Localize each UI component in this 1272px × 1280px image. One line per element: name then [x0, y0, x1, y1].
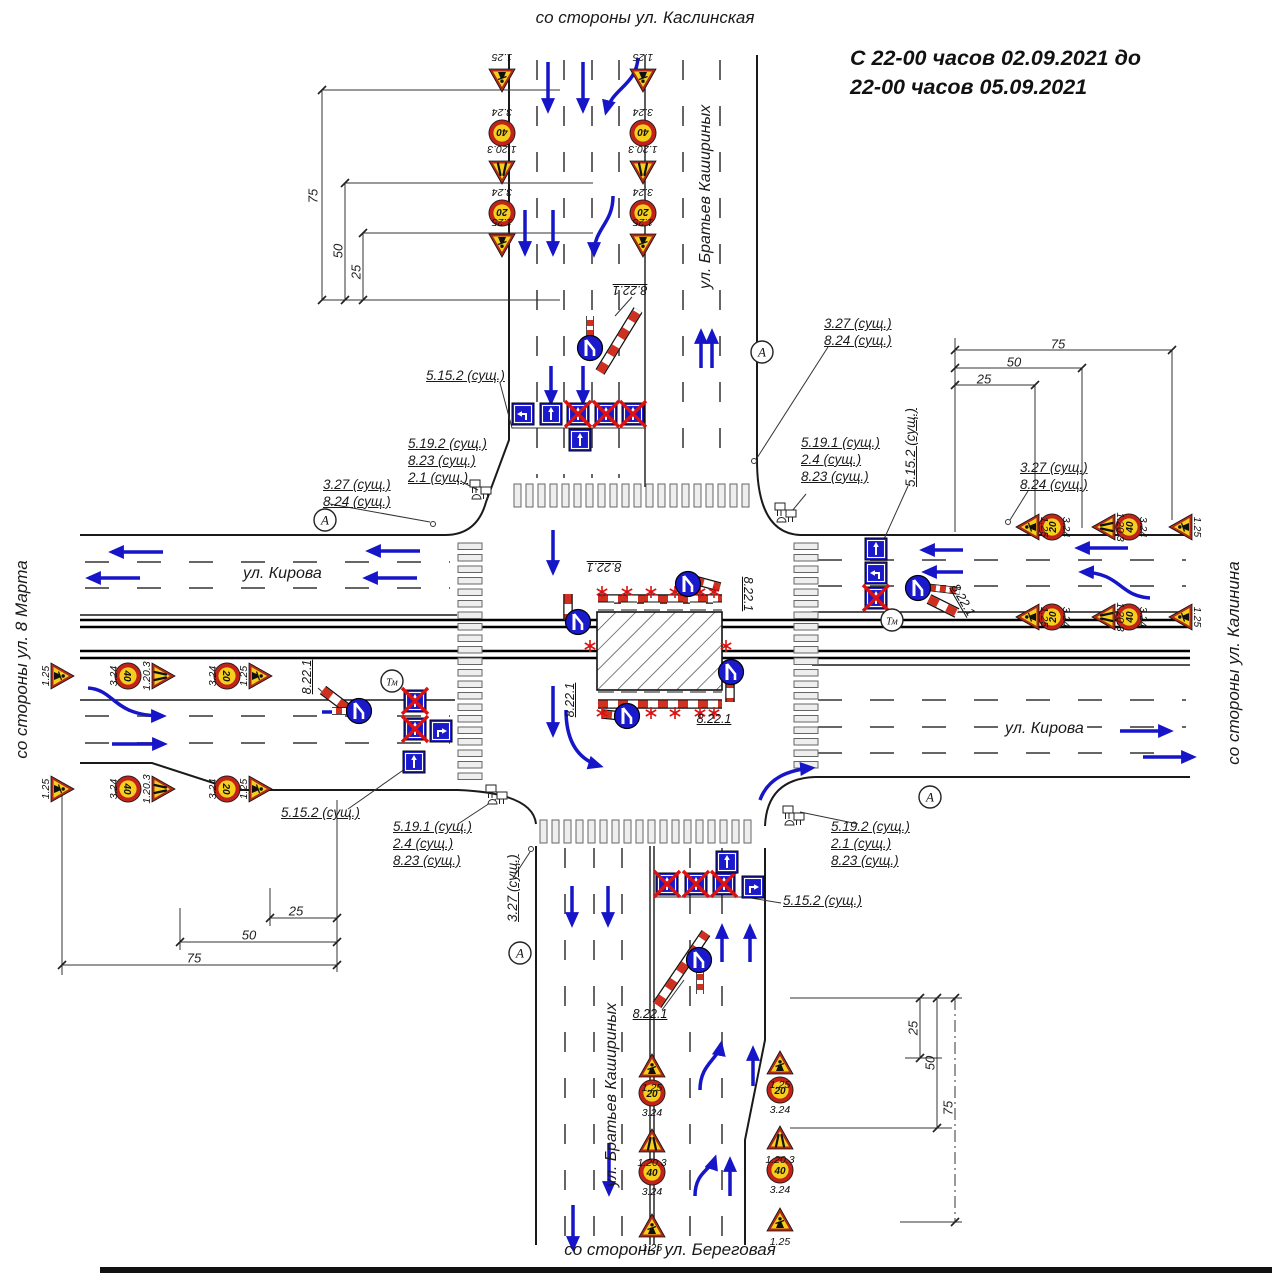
- crosswalk-bar: [550, 484, 557, 507]
- detour-sign-8-22-1: [676, 572, 701, 597]
- callout-line: 2.4 (сущ.): [801, 452, 880, 469]
- callout-5-19-2-group: 5.19.2 (сущ.)2.1 (сущ.)8.23 (сущ.): [831, 819, 910, 870]
- lane-sign-crossed: [711, 871, 737, 897]
- callout-line: 8.24 (сущ.): [824, 333, 892, 350]
- sign-number-label: 1.20.3: [1114, 602, 1126, 631]
- callout-line: 2.4 (сущ.): [393, 836, 472, 853]
- label-8-22-1: 8.22.1: [633, 1007, 668, 1021]
- crosswalk-bar: [794, 727, 818, 734]
- barrier-bar: [600, 310, 638, 372]
- sign-number-label: 3.24: [633, 186, 653, 198]
- symbol-letter: А: [925, 790, 934, 805]
- sign-1-25-roadworks: [51, 663, 74, 689]
- crosswalk-bar: [648, 820, 655, 843]
- lane-sign-crossed: [683, 871, 709, 897]
- street-label-kirova-right: ул. Кирова: [1002, 720, 1087, 738]
- crosswalk-bar: [586, 484, 593, 507]
- crosswalk-bar: [552, 820, 559, 843]
- sign-1-25-roadworks: [1016, 514, 1039, 540]
- sign-1-25-roadworks: [639, 1054, 665, 1077]
- crosswalk-bar: [458, 704, 482, 711]
- callout-5-19-1-group: 5.19.1 (сущ.)2.4 (сущ.)8.23 (сущ.): [393, 819, 472, 870]
- lane-sign-crossed: [654, 871, 680, 897]
- street-label-kirova-left: ул. Кирова: [240, 565, 325, 583]
- dimension-label: 50: [331, 244, 346, 258]
- lane-sign-crossed: [565, 401, 591, 427]
- crosswalk-bar: [458, 612, 482, 619]
- crosswalk-bar: [794, 612, 818, 619]
- crosswalk-bar: [708, 820, 715, 843]
- crosswalk-bar: [794, 693, 818, 700]
- callout-line: 3.27 (сущ.): [824, 316, 892, 333]
- crosswalk-bar: [744, 820, 751, 843]
- dimension-label: 75: [306, 189, 321, 203]
- sign-number-label: 1.25: [642, 1242, 662, 1254]
- callout-line: 5.15.2 (сущ.): [903, 408, 920, 487]
- callout-line: 8.23 (сущ.): [393, 853, 472, 870]
- sign-number-label: 1.25: [633, 216, 653, 228]
- crosswalk-bar: [706, 484, 713, 507]
- sign-number-label: 1.20.3: [141, 774, 153, 803]
- crosswalk-bar: [794, 681, 818, 688]
- crosswalk-bar: [634, 484, 641, 507]
- crosswalk-bar: [540, 820, 547, 843]
- traffic-arrow: [700, 1044, 721, 1090]
- bus-route-symbol: А: [314, 509, 336, 531]
- crosswalk-bar: [794, 555, 818, 562]
- speed-value: 40: [645, 1168, 658, 1179]
- red-lamp: [670, 707, 680, 719]
- street-label-kashirinykh-top: ул. Братьев Кашириных: [697, 71, 715, 292]
- crosswalk-bar: [458, 566, 482, 573]
- crosswalk-bar: [600, 820, 607, 843]
- lane-sign-crossed: [620, 401, 646, 427]
- lane-sign-crossed: [402, 688, 428, 714]
- crosswalk-bar: [458, 670, 482, 677]
- symbol-letter: А: [757, 345, 766, 360]
- callout-line: 8.23 (сущ.): [801, 469, 880, 486]
- barrier-bar: [929, 599, 957, 613]
- sign-number-label: 3.24: [770, 1184, 790, 1196]
- detour-sign-8-22-1: [347, 699, 372, 724]
- crosswalk-bar: [694, 484, 701, 507]
- dimension-label: 50: [1007, 355, 1021, 370]
- sign-1-25-roadworks: [639, 1214, 665, 1237]
- callout-line: 3.27 (сущ.): [505, 854, 522, 922]
- callout-line: 5.15.2 (сущ.): [426, 368, 505, 385]
- crosswalk-bar: [538, 484, 545, 507]
- sign-number-label: 1.20.3: [1114, 512, 1126, 541]
- sign-number-label: 1.20.3: [141, 661, 153, 690]
- speed-value: 20: [220, 782, 231, 795]
- crosswalk-bar: [458, 543, 482, 550]
- dimension-label: 25: [906, 1021, 921, 1035]
- sign-number-label: 1.25: [770, 1079, 790, 1091]
- lane-sign: [716, 851, 738, 873]
- callout-line: 3.27 (сущ.): [1020, 460, 1088, 477]
- label-8-22-1: 8.22.1: [587, 560, 622, 574]
- detour-sign-8-22-1: [615, 704, 640, 729]
- crosswalk-bar: [458, 578, 482, 585]
- lane-sign: [865, 538, 887, 560]
- callout-line: 5.19.1 (сущ.): [801, 435, 880, 452]
- traffic-arrow: [566, 710, 600, 766]
- lane-sign: [403, 751, 425, 773]
- crosswalk-bar: [794, 578, 818, 585]
- crosswalk-bar: [458, 589, 482, 596]
- traffic-arrow: [695, 1158, 715, 1196]
- street-label-kashirinykh-bottom: ул. Братьев Кашириных: [603, 909, 621, 1190]
- sign-1-20-3-narrowing: [489, 161, 515, 184]
- crosswalk-bar: [720, 820, 727, 843]
- crosswalk-bar: [794, 658, 818, 665]
- sign-1-25-roadworks: [489, 69, 515, 92]
- crosswalk-bar: [794, 543, 818, 550]
- detour-sign-8-22-1: [566, 610, 591, 635]
- sign-number-label: 3.24: [1060, 517, 1072, 537]
- crosswalk-bar: [458, 727, 482, 734]
- traffic-arrow: [88, 688, 163, 716]
- callout-line: 2.1 (сущ.): [408, 470, 487, 487]
- sign-number-label: 3.24: [1137, 607, 1149, 627]
- label-8-22-1: 8.22.1: [741, 577, 755, 612]
- label-8-22-1: 8.22.1: [300, 660, 314, 695]
- sign-number-label: 3.24: [633, 106, 653, 118]
- direction-label-top: со стороны ул. Каслинская: [480, 8, 810, 28]
- crosswalk-bar: [458, 601, 482, 608]
- callout-3-27: 3.27 (сущ.): [505, 854, 522, 922]
- lane-sign-crossed: [402, 716, 428, 742]
- crosswalk-bar: [794, 601, 818, 608]
- sign-1-25-roadworks: [489, 234, 515, 257]
- crosswalk-bar: [458, 773, 482, 780]
- crosswalk-bar: [458, 750, 482, 757]
- bus-route-symbol: А: [751, 341, 773, 363]
- existing-signs-cluster: [775, 503, 796, 522]
- speed-value: 40: [121, 782, 132, 795]
- sign-1-20-3-narrowing: [152, 663, 175, 689]
- callout-5-15-2: 5.15.2 (сущ.): [426, 368, 505, 385]
- dimension-label: 50: [923, 1056, 938, 1070]
- crosswalk-bar: [458, 762, 482, 769]
- crosswalk-bar: [794, 704, 818, 711]
- crosswalk-bar: [526, 484, 533, 507]
- callout-line: 3.27 (сущ.): [323, 477, 391, 494]
- crosswalk-bar: [458, 658, 482, 665]
- crosswalk-bar: [794, 624, 818, 631]
- title-line-1: С 22-00 часов 02.09.2021 до: [850, 44, 1141, 73]
- lane-sign-crossed: [593, 401, 619, 427]
- lane-sign: [569, 429, 591, 451]
- callout-3-27-group: 3.27 (сущ.)8.24 (сущ.): [323, 477, 391, 511]
- crosswalk-bar: [458, 693, 482, 700]
- sign-number-label: 1.20.3: [637, 1157, 666, 1169]
- callout-line: 5.19.2 (сущ.): [831, 819, 910, 836]
- sign-number-label: 1.20.3: [765, 1154, 794, 1166]
- tram-symbol: Тм: [381, 670, 403, 692]
- sign-number-label: 1.25: [1191, 607, 1203, 627]
- lane-sign: [865, 562, 887, 584]
- traffic-arrow: [606, 58, 638, 112]
- crosswalk-bar: [794, 750, 818, 757]
- sign-number-label: 1.25: [1191, 517, 1203, 537]
- sign-number-label: 3.24: [108, 666, 120, 686]
- crosswalk-bar: [562, 484, 569, 507]
- sign-number-label: 1.25: [1038, 517, 1050, 537]
- crosswalk-bar: [514, 484, 521, 507]
- sign-number-label: 1.25: [40, 666, 52, 686]
- sign-1-20-3-narrowing: [152, 776, 175, 802]
- bottom-border-line: [100, 1267, 1272, 1273]
- sign-1-25-roadworks: [249, 776, 272, 802]
- crosswalk-bar: [624, 820, 631, 843]
- sign-number-label: 3.24: [1060, 607, 1072, 627]
- bus-route-symbol: А: [509, 942, 531, 964]
- sign-number-label: 1.25: [770, 1236, 790, 1248]
- callout-5-15-2: 5.15.2 (сущ.): [281, 805, 360, 822]
- crosswalk-bar: [458, 635, 482, 642]
- dimension-label: 25: [289, 904, 303, 919]
- sign-number-label: 3.24: [1137, 517, 1149, 537]
- detour-sign-8-22-1: [578, 336, 603, 361]
- crosswalk-bar: [576, 820, 583, 843]
- sign-1-25-roadworks: [630, 234, 656, 257]
- callout-line: 8.24 (сущ.): [323, 494, 391, 511]
- callout-3-27-group: 3.27 (сущ.)8.24 (сущ.): [1020, 460, 1088, 494]
- crosswalk-bar: [636, 820, 643, 843]
- crosswalk-bar: [794, 647, 818, 654]
- symbol-letter: Тм: [386, 678, 398, 689]
- sign-number-label: 1.20.3: [487, 143, 516, 155]
- lane-sign-crossed: [863, 585, 889, 611]
- crosswalk-bar: [794, 589, 818, 596]
- label-8-22-1: 8.22.1: [697, 712, 732, 726]
- crosswalk-bar: [732, 820, 739, 843]
- detour-sign-8-22-1: [719, 660, 744, 685]
- dimension-label: 25: [349, 265, 364, 279]
- dimension-label: 75: [941, 1101, 956, 1115]
- callout-5-19-1-group: 5.19.1 (сущ.)2.4 (сущ.)8.23 (сущ.): [801, 435, 880, 486]
- crosswalk-bar: [794, 566, 818, 573]
- sign-number-label: 3.24: [770, 1104, 790, 1116]
- crosswalk-bar: [458, 624, 482, 631]
- crosswalk-bar: [696, 820, 703, 843]
- callout-5-19-2-group: 5.19.2 (сущ.)8.23 (сущ.)2.1 (сущ.): [408, 436, 487, 487]
- sign-number-label: 3.24: [492, 106, 512, 118]
- crosswalk-bar: [684, 820, 691, 843]
- scheme-title: С 22-00 часов 02.09.2021 до 22-00 часов …: [850, 44, 1141, 102]
- crosswalk-bar: [458, 555, 482, 562]
- existing-signs-cluster: [783, 806, 804, 825]
- crosswalk-bar: [458, 739, 482, 746]
- crosswalk-bar: [660, 820, 667, 843]
- sign-number-label: 3.24: [207, 666, 219, 686]
- sign-number-label: 1.20.3: [628, 143, 657, 155]
- sign-1-20-3-narrowing: [1092, 514, 1115, 540]
- crosswalk-bar: [588, 820, 595, 843]
- sign-number-label: 3.24: [642, 1107, 662, 1119]
- bus-route-symbol: А: [919, 786, 941, 808]
- direction-label-right: со стороны ул. Калинина: [1224, 548, 1244, 778]
- lane-sign: [742, 876, 764, 898]
- sign-number-label: 1.25: [1038, 607, 1050, 627]
- crosswalk-bar: [730, 484, 737, 507]
- crosswalk-bar: [612, 820, 619, 843]
- symbol-letter: А: [515, 946, 524, 961]
- red-lamp: [646, 707, 656, 719]
- crosswalk-bar: [622, 484, 629, 507]
- sign-1-20-3-narrowing: [639, 1129, 665, 1152]
- speed-value: 40: [1125, 611, 1136, 624]
- callout-3-27-group: 3.27 (сущ.)8.24 (сущ.): [824, 316, 892, 350]
- speed-value: 40: [121, 669, 132, 682]
- sign-number-label: 3.24: [642, 1186, 662, 1198]
- crosswalk-bar: [672, 820, 679, 843]
- callout-5-15-2: 5.15.2 (сущ.): [903, 408, 920, 487]
- crosswalk-bar: [574, 484, 581, 507]
- existing-signs-cluster: [486, 785, 507, 804]
- speed-value: 40: [637, 126, 650, 137]
- symbol-letter: А: [320, 513, 329, 528]
- lane-sign: [430, 720, 452, 742]
- callout-line: 8.23 (сущ.): [408, 453, 487, 470]
- speed-value: 40: [1125, 521, 1136, 534]
- lane-sign: [540, 403, 562, 425]
- sign-number-label: 3.24: [108, 779, 120, 799]
- sign-number-label: 1.25: [238, 779, 250, 799]
- sign-number-label: 1.25: [633, 51, 653, 63]
- callout-line: 5.19.1 (сущ.): [393, 819, 472, 836]
- crosswalk-bar: [458, 681, 482, 688]
- label-8-22-1: 8.22.1: [563, 683, 577, 718]
- direction-label-left: со стороны ул. 8 Марта: [12, 537, 32, 782]
- crosswalk-bar: [742, 484, 749, 507]
- callout-line: 2.1 (сущ.): [831, 836, 910, 853]
- symbol-letter: Тм: [886, 617, 898, 628]
- sign-number-label: 1.25: [492, 216, 512, 228]
- speed-value: 20: [220, 669, 231, 682]
- crosswalk-bar: [646, 484, 653, 507]
- crosswalk-bar: [682, 484, 689, 507]
- crosswalk-bar: [718, 484, 725, 507]
- callout-line: 5.19.2 (сущ.): [408, 436, 487, 453]
- crosswalk-bar: [794, 716, 818, 723]
- sign-1-25-roadworks: [767, 1208, 793, 1231]
- label-8-22-1: 8.22.1: [613, 283, 648, 297]
- sign-1-20-3-narrowing: [767, 1126, 793, 1149]
- crosswalk-bar: [458, 647, 482, 654]
- callout-line: 5.15.2 (сущ.): [783, 893, 862, 910]
- traffic-scheme-canvas: 40204020204020404020402020402040 ААААТмТ…: [0, 0, 1272, 1280]
- crosswalk-bar: [458, 716, 482, 723]
- sign-number-label: 1.25: [238, 666, 250, 686]
- sign-number-label: 3.24: [207, 779, 219, 799]
- dimension-label: 50: [242, 928, 256, 943]
- sign-1-25-roadworks: [249, 663, 272, 689]
- dimension-label: 75: [1051, 337, 1065, 352]
- detour-sign-8-22-1: [687, 948, 712, 973]
- sign-1-25-roadworks: [630, 69, 656, 92]
- title-line-2: 22-00 часов 05.09.2021: [850, 73, 1141, 102]
- crosswalk-bar: [670, 484, 677, 507]
- speed-value: 40: [773, 1166, 786, 1177]
- traffic-arrow: [594, 196, 613, 254]
- crosswalk-bar: [794, 635, 818, 642]
- crosswalk-bar: [794, 739, 818, 746]
- work-zone: [597, 612, 722, 690]
- callout-5-15-2: 5.15.2 (сущ.): [783, 893, 862, 910]
- crosswalk-bar: [598, 484, 605, 507]
- speed-value: 40: [496, 126, 509, 137]
- callout-line: 8.24 (сущ.): [1020, 477, 1088, 494]
- sign-1-20-3-narrowing: [630, 161, 656, 184]
- sign-number-label: 1.25: [40, 779, 52, 799]
- callout-line: 8.23 (сущ.): [831, 853, 910, 870]
- callout-line: 5.15.2 (сущ.): [281, 805, 360, 822]
- crosswalk-bar: [564, 820, 571, 843]
- crosswalk-bar: [610, 484, 617, 507]
- tram-symbol: Тм: [881, 609, 903, 631]
- crosswalk-bar: [794, 670, 818, 677]
- sign-number-label: 1.25: [642, 1082, 662, 1094]
- crosswalk-bar: [658, 484, 665, 507]
- dimension-label: 25: [977, 372, 991, 387]
- detour-sign-8-22-1: [906, 576, 931, 601]
- sign-number-label: 3.24: [492, 186, 512, 198]
- dimension-label: 75: [187, 951, 201, 966]
- sign-1-25-roadworks: [767, 1051, 793, 1074]
- sign-number-label: 1.25: [492, 51, 512, 63]
- lane-sign: [512, 403, 534, 425]
